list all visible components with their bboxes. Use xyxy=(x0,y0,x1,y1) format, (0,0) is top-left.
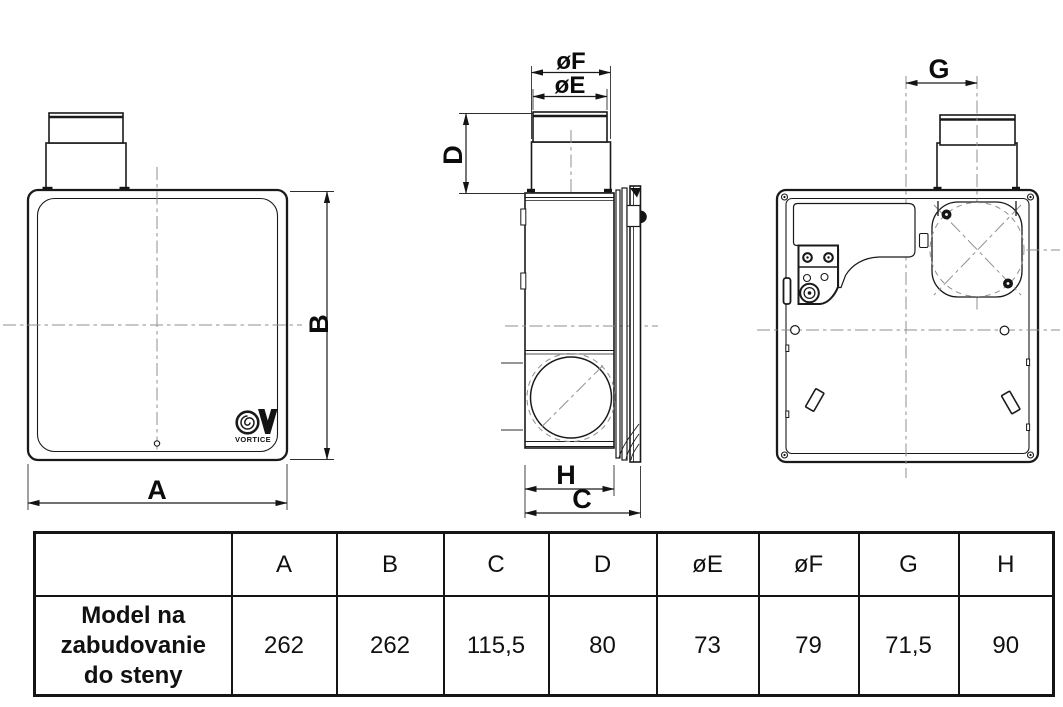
technical-drawing: VORTICE A B xyxy=(0,0,1063,530)
value-a: 262 xyxy=(232,596,337,696)
col-header-d: D xyxy=(549,533,657,597)
dim-label-b: B xyxy=(304,314,334,334)
dimension-b: B xyxy=(290,192,334,460)
dim-label-d: D xyxy=(438,145,468,165)
dimension-h: H xyxy=(525,460,614,518)
table-header-row: A B C D øE øF G H xyxy=(35,533,1054,597)
cable-grommet-icon xyxy=(800,284,819,303)
side-panel-stack xyxy=(616,186,647,462)
dim-label-of: øF xyxy=(556,48,585,75)
value-d: 80 xyxy=(549,596,657,696)
dim-label-c: C xyxy=(572,484,592,514)
dimension-d: D xyxy=(438,114,533,194)
col-header-h: H xyxy=(959,533,1054,597)
row-label: Model na zabudovanie do steny xyxy=(35,596,232,696)
value-h: 90 xyxy=(959,596,1054,696)
front-pilot-hole xyxy=(154,441,159,446)
dim-label-g: G xyxy=(928,54,949,84)
dim-label-oe: øE xyxy=(555,72,586,99)
col-header-b: B xyxy=(337,533,444,597)
technical-drawing-page: VORTICE A B xyxy=(0,0,1063,707)
col-header-c: C xyxy=(444,533,549,597)
dimensions-table: A B C D øE øF G H Model na zabudovanie d… xyxy=(33,531,1055,697)
front-view: VORTICE A B xyxy=(3,113,334,510)
side-slot xyxy=(784,278,791,304)
side-body xyxy=(501,189,614,448)
dimension-oe: øE xyxy=(533,72,607,110)
mounting-hole xyxy=(791,326,800,335)
dimension-c: C xyxy=(525,466,641,518)
dim-label-a: A xyxy=(147,475,167,505)
terminal-bracket xyxy=(799,246,839,305)
value-c: 115,5 xyxy=(444,596,549,696)
col-header-of: øF xyxy=(759,533,859,597)
dimension-a: A xyxy=(28,464,287,510)
value-of: 79 xyxy=(759,596,859,696)
fan-housing xyxy=(930,201,1024,297)
value-oe: 73 xyxy=(657,596,759,696)
back-view: G xyxy=(757,54,1060,478)
table-corner-cell xyxy=(35,533,232,597)
mounting-hole xyxy=(1000,326,1009,335)
front-duct-stub xyxy=(43,113,130,191)
value-b: 262 xyxy=(337,596,444,696)
table-row: Model na zabudovanie do steny 262 262 11… xyxy=(35,596,1054,696)
clip-slot xyxy=(920,234,929,248)
value-g: 71,5 xyxy=(859,596,959,696)
col-header-a: A xyxy=(232,533,337,597)
vortice-logo-text: VORTICE xyxy=(235,435,271,444)
side-view: D øF øE H C xyxy=(438,48,658,518)
dimension-g: G xyxy=(906,54,977,84)
col-header-g: G xyxy=(859,533,959,597)
col-header-oe: øE xyxy=(657,533,759,597)
